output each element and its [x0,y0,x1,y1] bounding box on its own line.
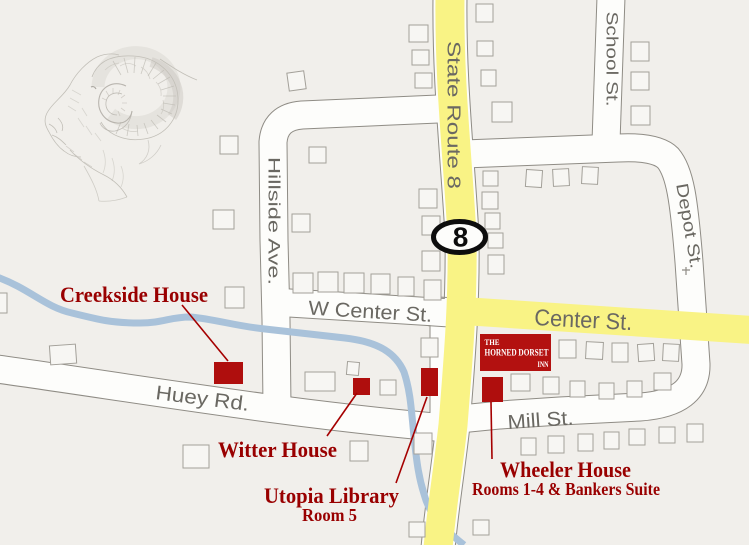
svg-text:School St.: School St. [603,12,622,107]
svg-text:8: 8 [453,222,469,253]
svg-text:Center St.: Center St. [534,304,633,335]
svg-text:Mill St.: Mill St. [507,407,574,434]
svg-text:Witter House: Witter House [218,437,337,462]
svg-text:Hillside Ave.: Hillside Ave. [265,157,283,285]
svg-text:Creekside House: Creekside House [60,282,208,307]
svg-text:Rooms 1-4 & Bankers Suite: Rooms 1-4 & Bankers Suite [472,479,660,499]
svg-text:THE: THE [485,337,500,347]
svg-text:State Route 8: State Route 8 [443,41,463,189]
svg-text:Room 5: Room 5 [302,505,357,525]
svg-text:INN: INN [538,359,550,369]
svg-text:HORNED DORSET: HORNED DORSET [485,349,550,359]
